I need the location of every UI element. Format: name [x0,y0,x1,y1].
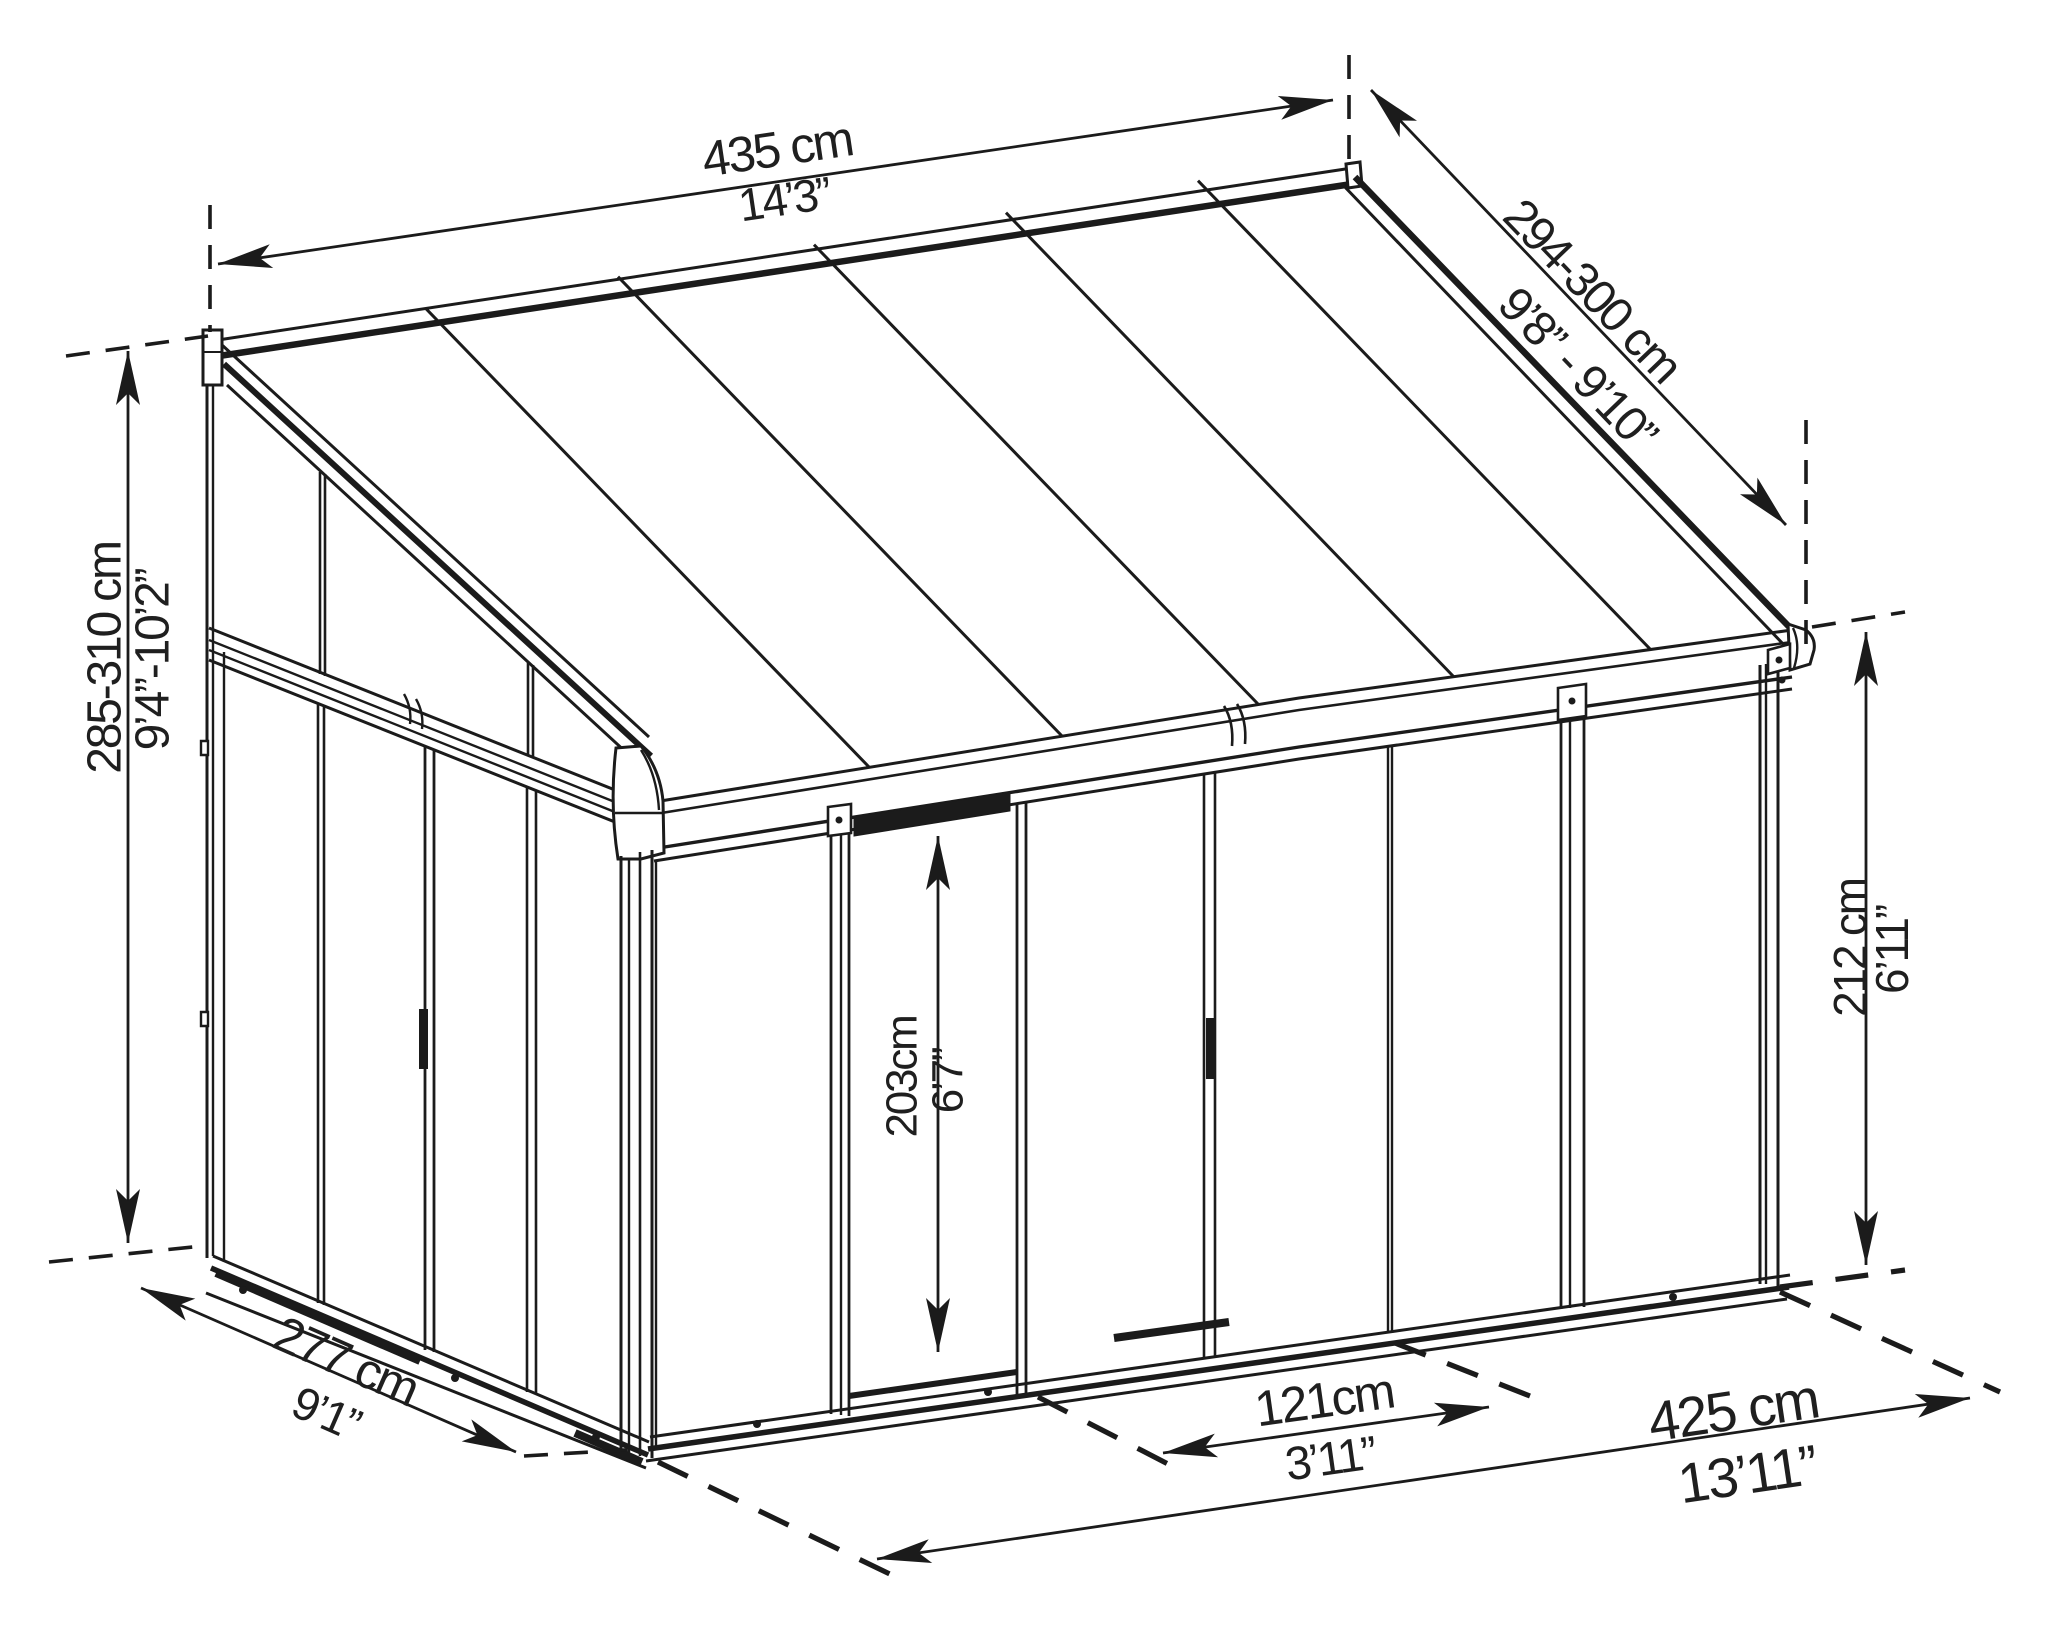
svg-text:6’7”: 6’7” [924,1047,973,1113]
svg-text:9’4”-10’2”: 9’4”-10’2” [127,568,180,750]
svg-text:6’11”: 6’11” [1866,905,1918,994]
svg-text:203cm: 203cm [878,1016,927,1137]
svg-text:285-310 cm: 285-310 cm [79,542,132,773]
